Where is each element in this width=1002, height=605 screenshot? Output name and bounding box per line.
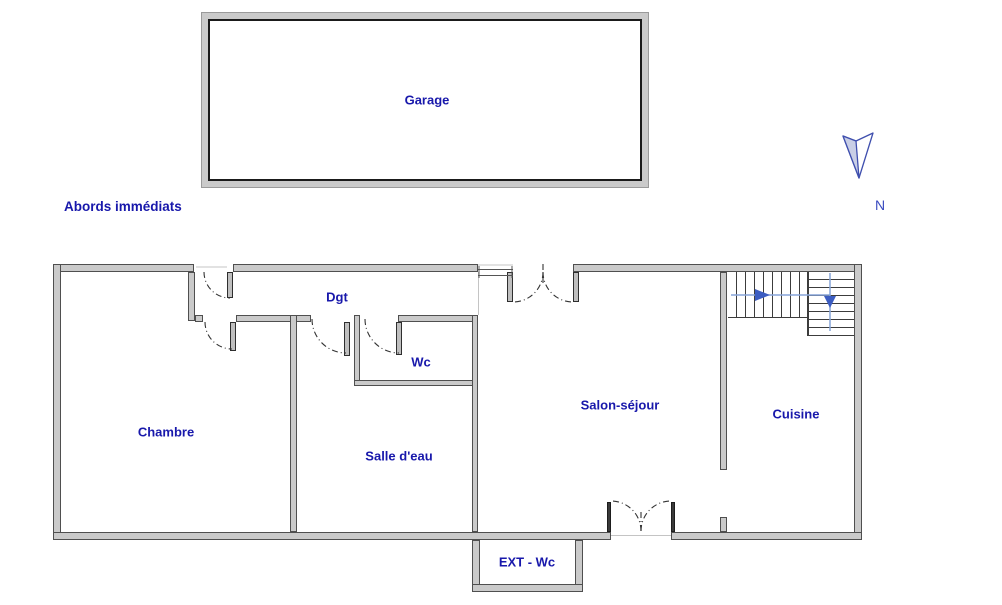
wall-left [53, 264, 61, 540]
compass-north-label: N [875, 197, 885, 213]
room-label-cuisine: Cuisine [773, 407, 820, 422]
plan-title: Abords immédiats [64, 199, 182, 214]
wall-top-right [573, 264, 862, 272]
wall-top-left [53, 264, 194, 272]
staircase-upper-flight [807, 272, 854, 336]
staircase-lower-flight [728, 272, 807, 318]
door-swing-arc [312, 319, 346, 353]
door-swing-arc [611, 501, 641, 531]
wall-bottom-right [671, 532, 862, 540]
door-leaf-terrace-left [607, 502, 611, 532]
wall-chambre-salledeau-divider [290, 315, 297, 532]
room-label-garage: Garage [405, 93, 450, 108]
wall-salledeau-salon-divider [472, 315, 478, 532]
wall-wc-bottom [354, 380, 478, 386]
room-label-chambre: Chambre [138, 425, 194, 440]
wall-wc-top [398, 315, 478, 322]
room-label-salle-deau: Salle d'eau [365, 449, 432, 464]
wall-salledeau-wc-divider [354, 315, 360, 386]
door-leaf-entrance-right [573, 272, 579, 302]
room-label-dgt: Dgt [326, 290, 348, 305]
wall-bottom-left [53, 532, 611, 540]
door-leaf-terrace-right [671, 502, 675, 532]
north-arrow-icon [843, 133, 873, 178]
door-swing-arc [641, 501, 671, 531]
room-label-ext-wc: EXT - Wc [499, 555, 555, 570]
wall-extwc-bottom [472, 584, 583, 592]
wall-top-middle [233, 264, 478, 272]
wall-interior-middle [236, 315, 311, 322]
door-leaf-salledeau [344, 322, 350, 356]
wall-chambre-dgt-divider [188, 272, 195, 321]
door-leaf-entrance-left [507, 272, 513, 302]
door-swing-arc [543, 272, 573, 302]
wall-right [854, 264, 862, 540]
wall-cuisine-divider-stub [720, 517, 727, 532]
floor-plan-canvas: Garage Abords immédiats N [0, 0, 1002, 605]
door-swing-arc [513, 272, 543, 302]
door-leaf-entry-dgt [227, 272, 233, 298]
wall-interior-stub-left [195, 315, 203, 322]
wall-salon-cuisine-divider [720, 272, 727, 470]
door-swing-arc [365, 319, 399, 353]
door-leaf-wc [396, 322, 402, 355]
room-label-salon-sejour: Salon-séjour [581, 398, 660, 413]
room-label-wc: Wc [411, 355, 431, 370]
door-swing-arc [205, 322, 232, 349]
door-leaf-chambre [230, 322, 236, 351]
